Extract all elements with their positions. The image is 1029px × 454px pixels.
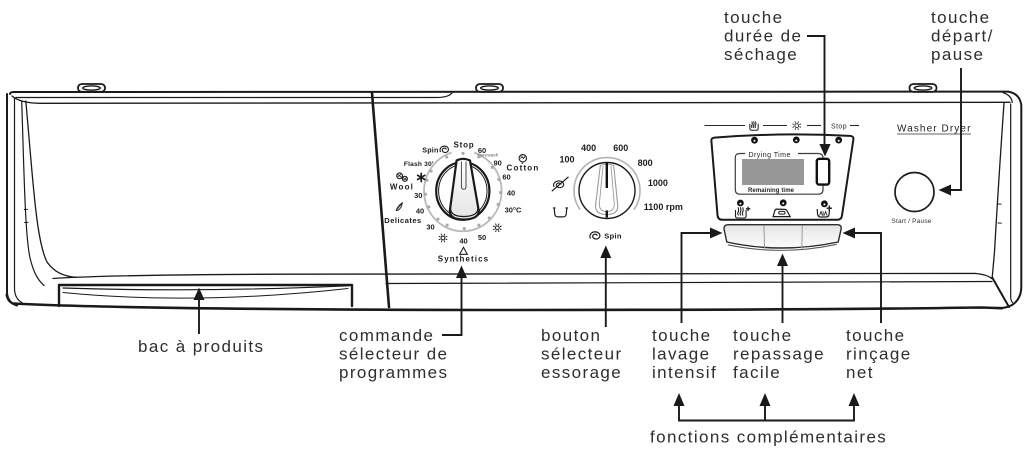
- svg-text:facile: facile: [733, 363, 781, 382]
- svg-text:intensif: intensif: [652, 363, 717, 382]
- svg-text:bouton: bouton: [541, 326, 601, 345]
- svg-text:400: 400: [581, 143, 596, 153]
- svg-text:Flash 30': Flash 30': [404, 161, 434, 168]
- svg-text:Stop: Stop: [454, 141, 475, 150]
- svg-text:800: 800: [638, 158, 653, 168]
- svg-text:600: 600: [613, 143, 628, 153]
- svg-text:60: 60: [502, 173, 510, 182]
- svg-text:40: 40: [416, 207, 424, 216]
- svg-text:repassage: repassage: [733, 345, 825, 364]
- svg-text:départ/: départ/: [931, 27, 994, 46]
- svg-text:rinçage: rinçage: [846, 345, 912, 364]
- svg-text:sélecteur de: sélecteur de: [339, 345, 448, 364]
- svg-text:100: 100: [559, 155, 574, 165]
- svg-text:programmes: programmes: [339, 363, 448, 382]
- svg-text:40: 40: [459, 237, 467, 246]
- svg-text:touche: touche: [652, 326, 711, 345]
- svg-text:Drying Time: Drying Time: [749, 152, 791, 159]
- svg-text:Cotton: Cotton: [507, 164, 540, 173]
- svg-text:pause: pause: [931, 45, 984, 64]
- svg-text:Stop: Stop: [831, 124, 847, 131]
- svg-text:touche: touche: [846, 326, 905, 345]
- svg-text:Spin: Spin: [422, 145, 438, 154]
- svg-text:+prewash: +prewash: [478, 152, 499, 157]
- svg-text:sélecteur: sélecteur: [541, 345, 623, 364]
- svg-text:90: 90: [494, 159, 502, 168]
- svg-text:30: 30: [426, 223, 434, 232]
- svg-text:fonctions complémentaires: fonctions complémentaires: [650, 428, 887, 447]
- svg-text:Spin: Spin: [604, 232, 622, 241]
- svg-text:30: 30: [414, 191, 422, 200]
- svg-text:Synthetics: Synthetics: [438, 255, 489, 264]
- svg-text:Start / Pause: Start / Pause: [891, 218, 931, 225]
- svg-text:1100 rpm: 1100 rpm: [644, 202, 683, 212]
- svg-text:bac à produits: bac à produits: [138, 337, 264, 356]
- svg-text:net: net: [846, 363, 874, 382]
- svg-text:commande: commande: [339, 326, 434, 345]
- svg-text:1000: 1000: [648, 178, 668, 188]
- svg-text:touche: touche: [733, 326, 792, 345]
- svg-text:séchage: séchage: [724, 45, 798, 64]
- svg-text:Wool: Wool: [390, 183, 414, 192]
- svg-text:40: 40: [507, 189, 515, 198]
- svg-text:50: 50: [478, 233, 486, 242]
- svg-text:Remaining time: Remaining time: [748, 188, 795, 194]
- svg-text:essorage: essorage: [541, 363, 622, 382]
- svg-text:30°C: 30°C: [505, 206, 522, 215]
- svg-text:lavage: lavage: [652, 345, 711, 364]
- svg-text:touche: touche: [931, 8, 990, 27]
- svg-text:Delicates: Delicates: [384, 216, 421, 225]
- svg-text:touche: touche: [724, 8, 783, 27]
- svg-text:durée de: durée de: [724, 27, 802, 46]
